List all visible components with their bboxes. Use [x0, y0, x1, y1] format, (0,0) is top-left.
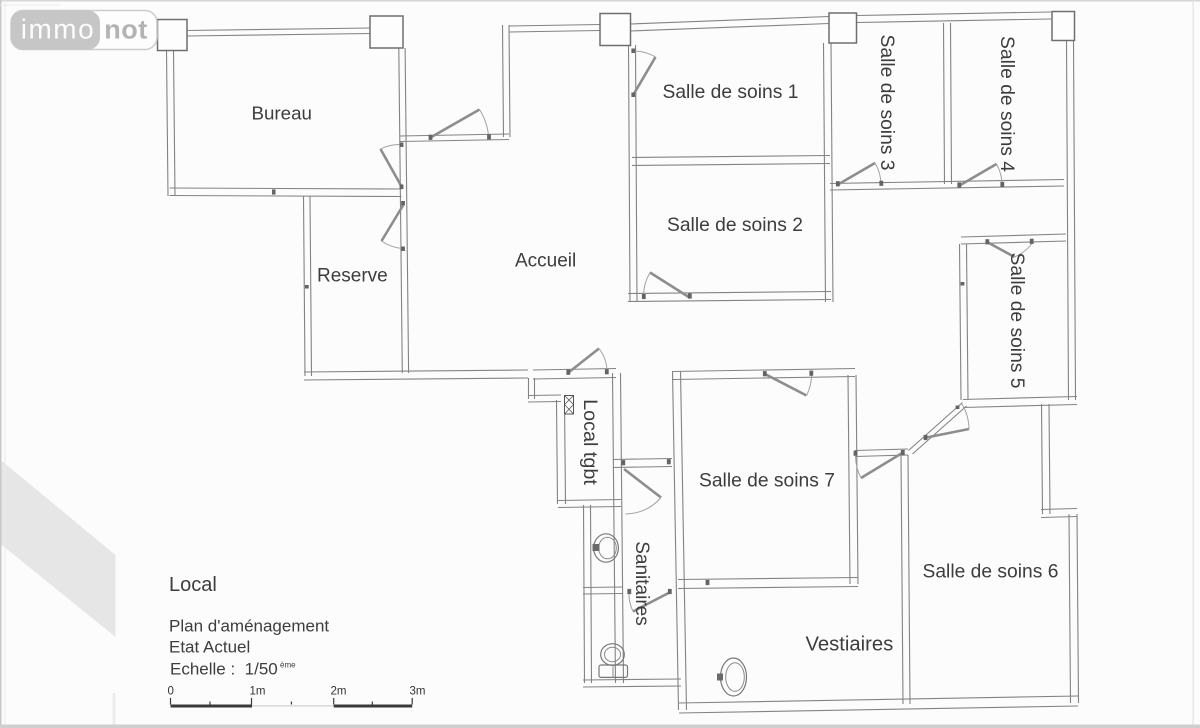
- svg-text:Salle de soins 2: Salle de soins 2: [667, 215, 803, 236]
- svg-text:Salle de soins 3: Salle de soins 3: [876, 35, 897, 171]
- svg-text:Plan d'aménagement: Plan d'aménagement: [169, 617, 329, 636]
- svg-text:Local: Local: [169, 574, 217, 596]
- svg-text:Etat Actuel: Etat Actuel: [169, 638, 250, 657]
- svg-text:Local tgbt: Local tgbt: [579, 399, 601, 485]
- svg-text:Salle de soins 5: Salle de soins 5: [1006, 253, 1027, 389]
- svg-text:Vestiaires: Vestiaires: [806, 634, 894, 656]
- svg-text:Reserve: Reserve: [317, 266, 388, 287]
- svg-text:Accueil: Accueil: [515, 251, 576, 272]
- svg-text:1m: 1m: [250, 686, 266, 698]
- svg-text:not: not: [104, 15, 147, 45]
- svg-text:Salle de soins 6: Salle de soins 6: [923, 562, 1059, 583]
- svg-text:Salle de soins 1: Salle de soins 1: [663, 82, 799, 103]
- svg-text:2m: 2m: [331, 686, 347, 698]
- svg-text:Sanitaires: Sanitaires: [631, 541, 652, 626]
- svg-text:ème: ème: [280, 661, 296, 670]
- svg-text:3m: 3m: [410, 686, 426, 698]
- svg-text:0: 0: [168, 686, 174, 698]
- svg-text:Salle de soins 7: Salle de soins 7: [699, 471, 835, 492]
- svg-text:immo: immo: [21, 14, 95, 45]
- svg-text:Echelle : 1/50: Echelle : 1/50: [170, 660, 278, 679]
- svg-text:Bureau: Bureau: [252, 103, 312, 124]
- svg-text:Salle de soins 4: Salle de soins 4: [996, 36, 1017, 172]
